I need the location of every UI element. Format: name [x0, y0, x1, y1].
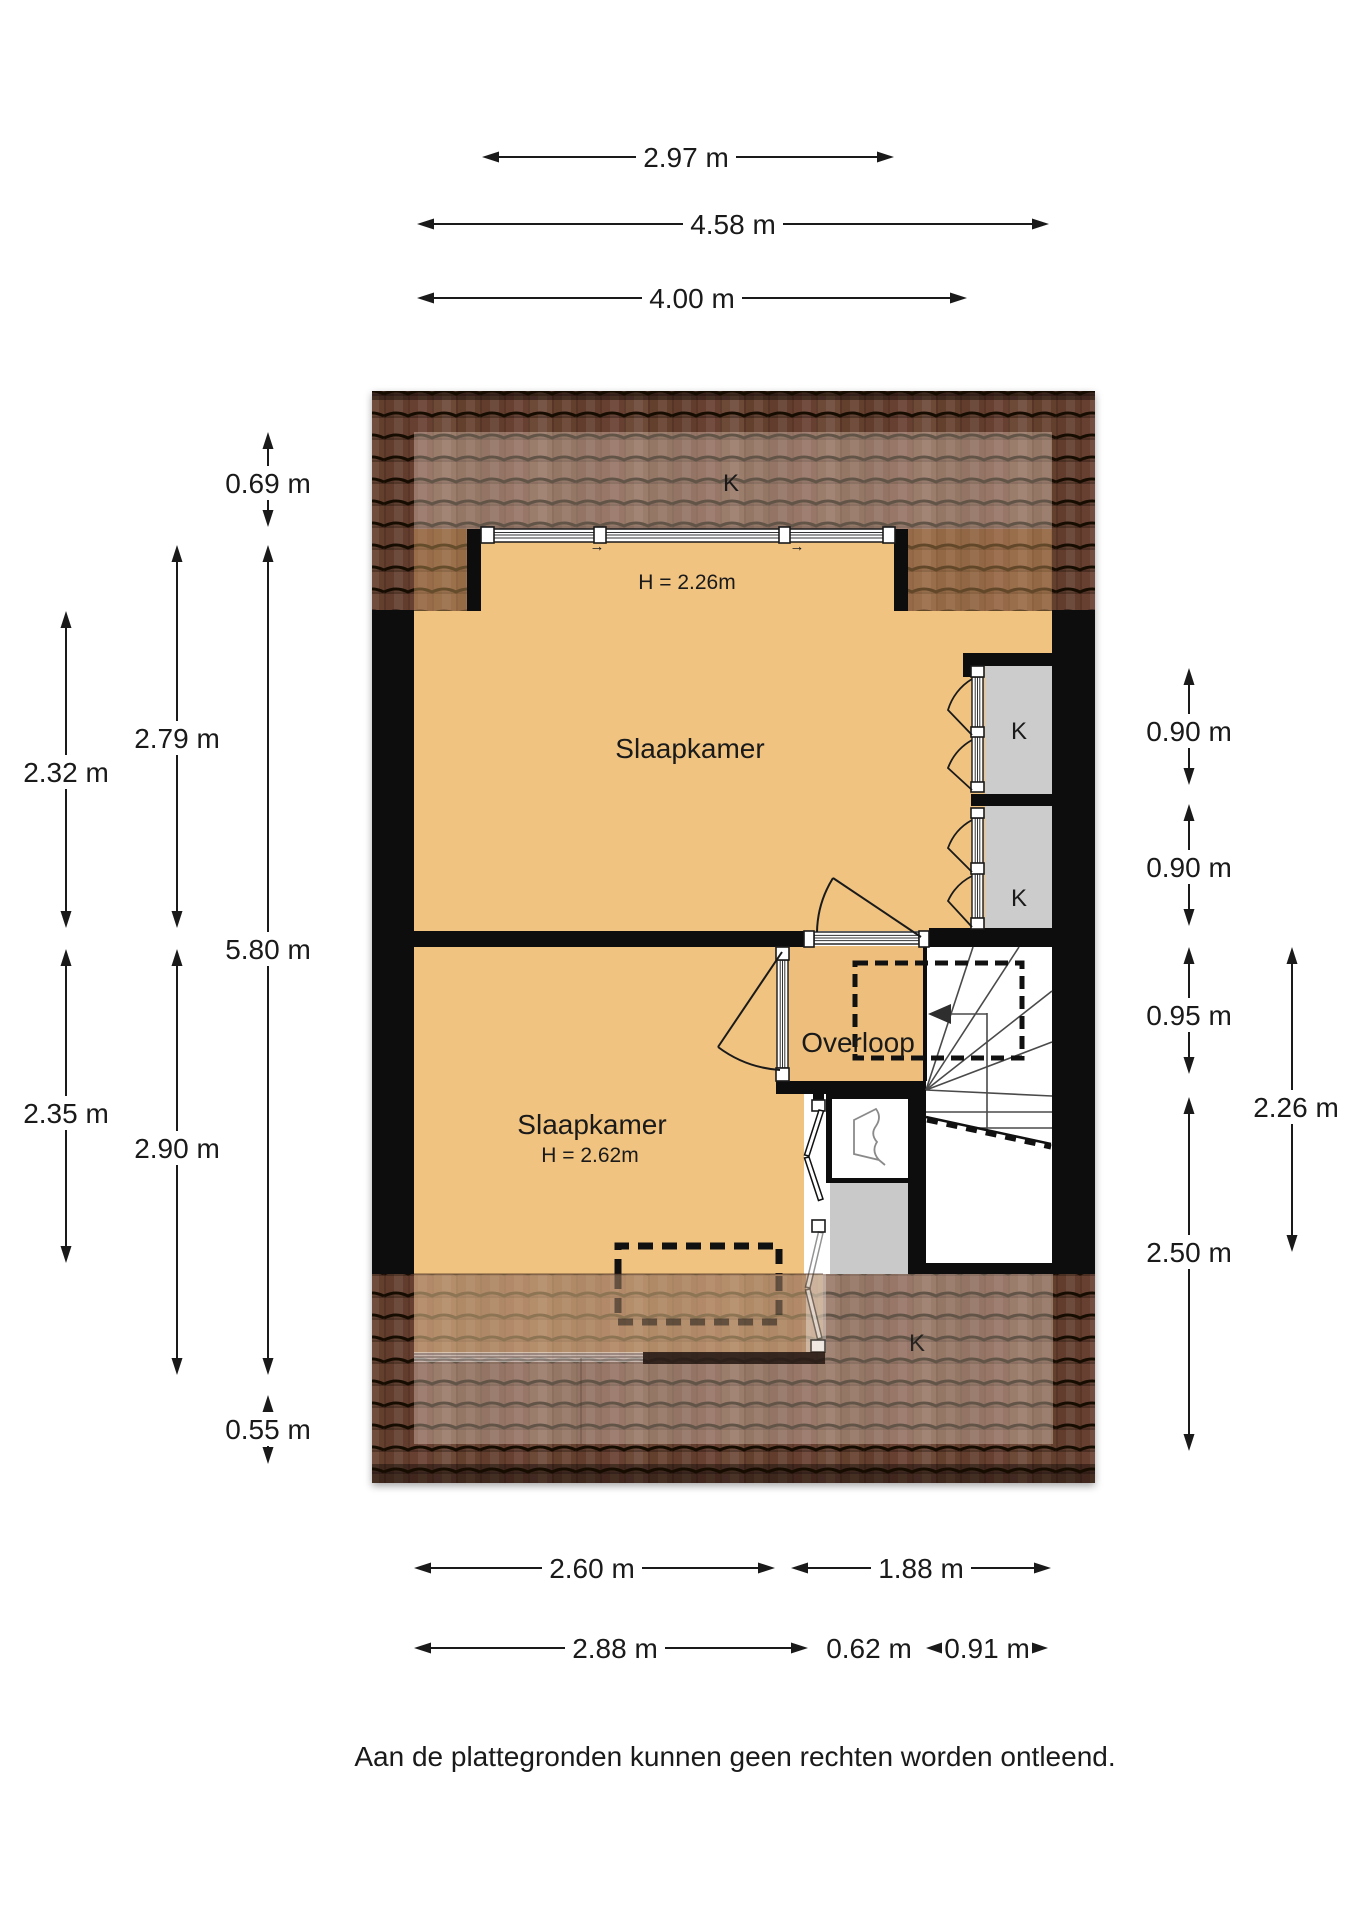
- svg-text:0.62 m: 0.62 m: [826, 1633, 912, 1664]
- svg-text:1.88 m: 1.88 m: [878, 1553, 964, 1584]
- svg-text:2.88 m: 2.88 m: [572, 1633, 658, 1664]
- svg-text:Slaapkamer: Slaapkamer: [517, 1109, 666, 1140]
- svg-text:2.60 m: 2.60 m: [549, 1553, 635, 1584]
- svg-text:0.55 m: 0.55 m: [225, 1414, 311, 1445]
- svg-text:→: →: [590, 538, 605, 555]
- svg-text:K: K: [909, 1330, 925, 1357]
- svg-text:0.90 m: 0.90 m: [1146, 852, 1232, 883]
- svg-text:K: K: [1011, 885, 1027, 912]
- svg-text:5.80 m: 5.80 m: [225, 934, 311, 965]
- svg-text:0.69 m: 0.69 m: [225, 468, 311, 499]
- svg-text:Aan de plattegronden kunnen ge: Aan de plattegronden kunnen geen rechten…: [354, 1741, 1115, 1772]
- svg-text:2.26 m: 2.26 m: [1253, 1092, 1339, 1123]
- svg-text:2.79 m: 2.79 m: [134, 723, 220, 754]
- svg-text:Overloop: Overloop: [801, 1027, 915, 1058]
- svg-text:4.58 m: 4.58 m: [690, 209, 776, 240]
- svg-text:4.00 m: 4.00 m: [649, 283, 735, 314]
- svg-text:K: K: [723, 470, 739, 497]
- svg-text:0.95 m: 0.95 m: [1146, 1000, 1232, 1031]
- svg-text:2.50 m: 2.50 m: [1146, 1237, 1232, 1268]
- svg-text:2.35 m: 2.35 m: [23, 1098, 109, 1129]
- svg-text:K: K: [1011, 718, 1027, 745]
- svg-text:2.97 m: 2.97 m: [643, 142, 729, 173]
- svg-text:0.91 m: 0.91 m: [944, 1633, 1030, 1664]
- svg-text:Slaapkamer: Slaapkamer: [615, 733, 764, 764]
- svg-text:→: →: [790, 538, 805, 555]
- svg-text:0.90 m: 0.90 m: [1146, 716, 1232, 747]
- svg-text:H = 2.26m: H = 2.26m: [638, 571, 735, 594]
- svg-text:2.32 m: 2.32 m: [23, 757, 109, 788]
- svg-text:2.90 m: 2.90 m: [134, 1133, 220, 1164]
- svg-text:H = 2.62m: H = 2.62m: [541, 1144, 638, 1167]
